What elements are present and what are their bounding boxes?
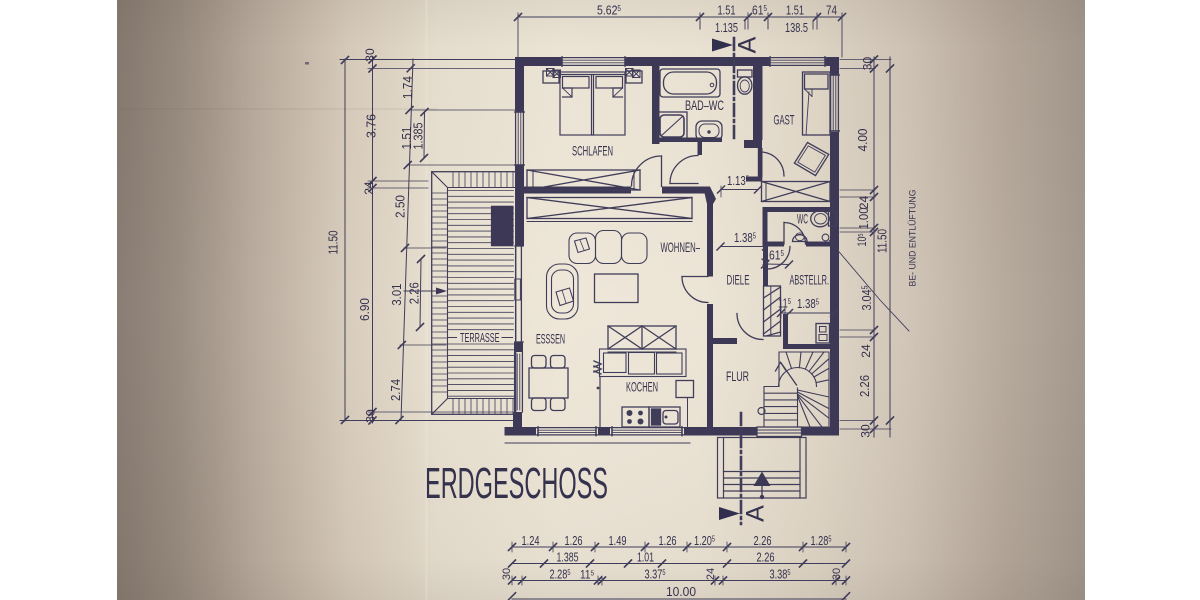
svg-text:TERRASSE: TERRASSE: [460, 331, 500, 345]
svg-text:ESSSEN: ESSSEN: [536, 332, 565, 347]
svg-text:24: 24: [859, 344, 873, 358]
svg-text:1.385: 1.385: [412, 122, 426, 149]
svg-text:10.00: 10.00: [666, 584, 696, 599]
svg-text:1.24: 1.24: [522, 533, 540, 548]
svg-text:1.49: 1.49: [609, 533, 627, 548]
svg-text:FLUR: FLUR: [726, 369, 749, 384]
svg-text:1.385: 1.385: [557, 550, 579, 565]
svg-text:A: A: [742, 505, 770, 522]
svg-text:30: 30: [364, 409, 378, 423]
svg-text:4.00: 4.00: [856, 128, 870, 151]
svg-text:30: 30: [363, 48, 377, 62]
svg-text:3.76: 3.76: [365, 114, 379, 138]
svg-text:2.50: 2.50: [393, 195, 407, 218]
svg-text:SCHLAFEN: SCHLAFEN: [572, 144, 613, 159]
svg-text:30: 30: [501, 568, 513, 580]
svg-text:30: 30: [861, 57, 875, 71]
svg-text:WC: WC: [797, 212, 808, 227]
svg-text:30: 30: [859, 424, 873, 438]
svg-text:ABSTELLR.: ABSTELLR.: [790, 273, 830, 288]
svg-text:1.135: 1.135: [715, 20, 738, 35]
svg-text:11.50: 11.50: [326, 230, 340, 254]
svg-text:24: 24: [857, 196, 871, 210]
svg-text:1.01: 1.01: [637, 550, 654, 565]
svg-text:GAST: GAST: [774, 113, 795, 128]
svg-text:1.26: 1.26: [565, 533, 583, 548]
svg-text:2.26: 2.26: [754, 533, 772, 548]
svg-text:KOCHEN: KOCHEN: [626, 380, 658, 395]
svg-text:138.5: 138.5: [785, 20, 808, 35]
svg-text:A: A: [734, 36, 762, 53]
svg-text:2.26: 2.26: [858, 375, 872, 397]
svg-text:BE- UND ENTLÜFTUNG: BE- UND ENTLÜFTUNG: [908, 190, 919, 287]
svg-text:6.90: 6.90: [358, 298, 372, 321]
svg-text:1.74: 1.74: [401, 76, 415, 99]
svg-text:WOHNEN–: WOHNEN–: [661, 240, 701, 255]
svg-text:BAD–WC: BAD–WC: [685, 98, 724, 113]
svg-text:24: 24: [362, 181, 376, 195]
svg-text:ERDGESCHOSS: ERDGESCHOSS: [425, 459, 608, 508]
svg-text:24: 24: [705, 568, 717, 580]
svg-text:2.26: 2.26: [757, 550, 775, 565]
svg-text:74: 74: [826, 3, 837, 18]
svg-text:11.50: 11.50: [876, 229, 890, 253]
svg-text:2.26: 2.26: [408, 282, 422, 304]
svg-text:3.01: 3.01: [390, 284, 404, 306]
svg-text:1.51: 1.51: [718, 3, 736, 18]
svg-text:30: 30: [831, 568, 843, 580]
svg-text:DIELE: DIELE: [727, 273, 750, 288]
svg-text:1.51: 1.51: [786, 3, 804, 18]
svg-text:1.26: 1.26: [659, 533, 677, 548]
svg-text:1.00: 1.00: [857, 207, 871, 229]
svg-text:2.74: 2.74: [389, 379, 403, 401]
